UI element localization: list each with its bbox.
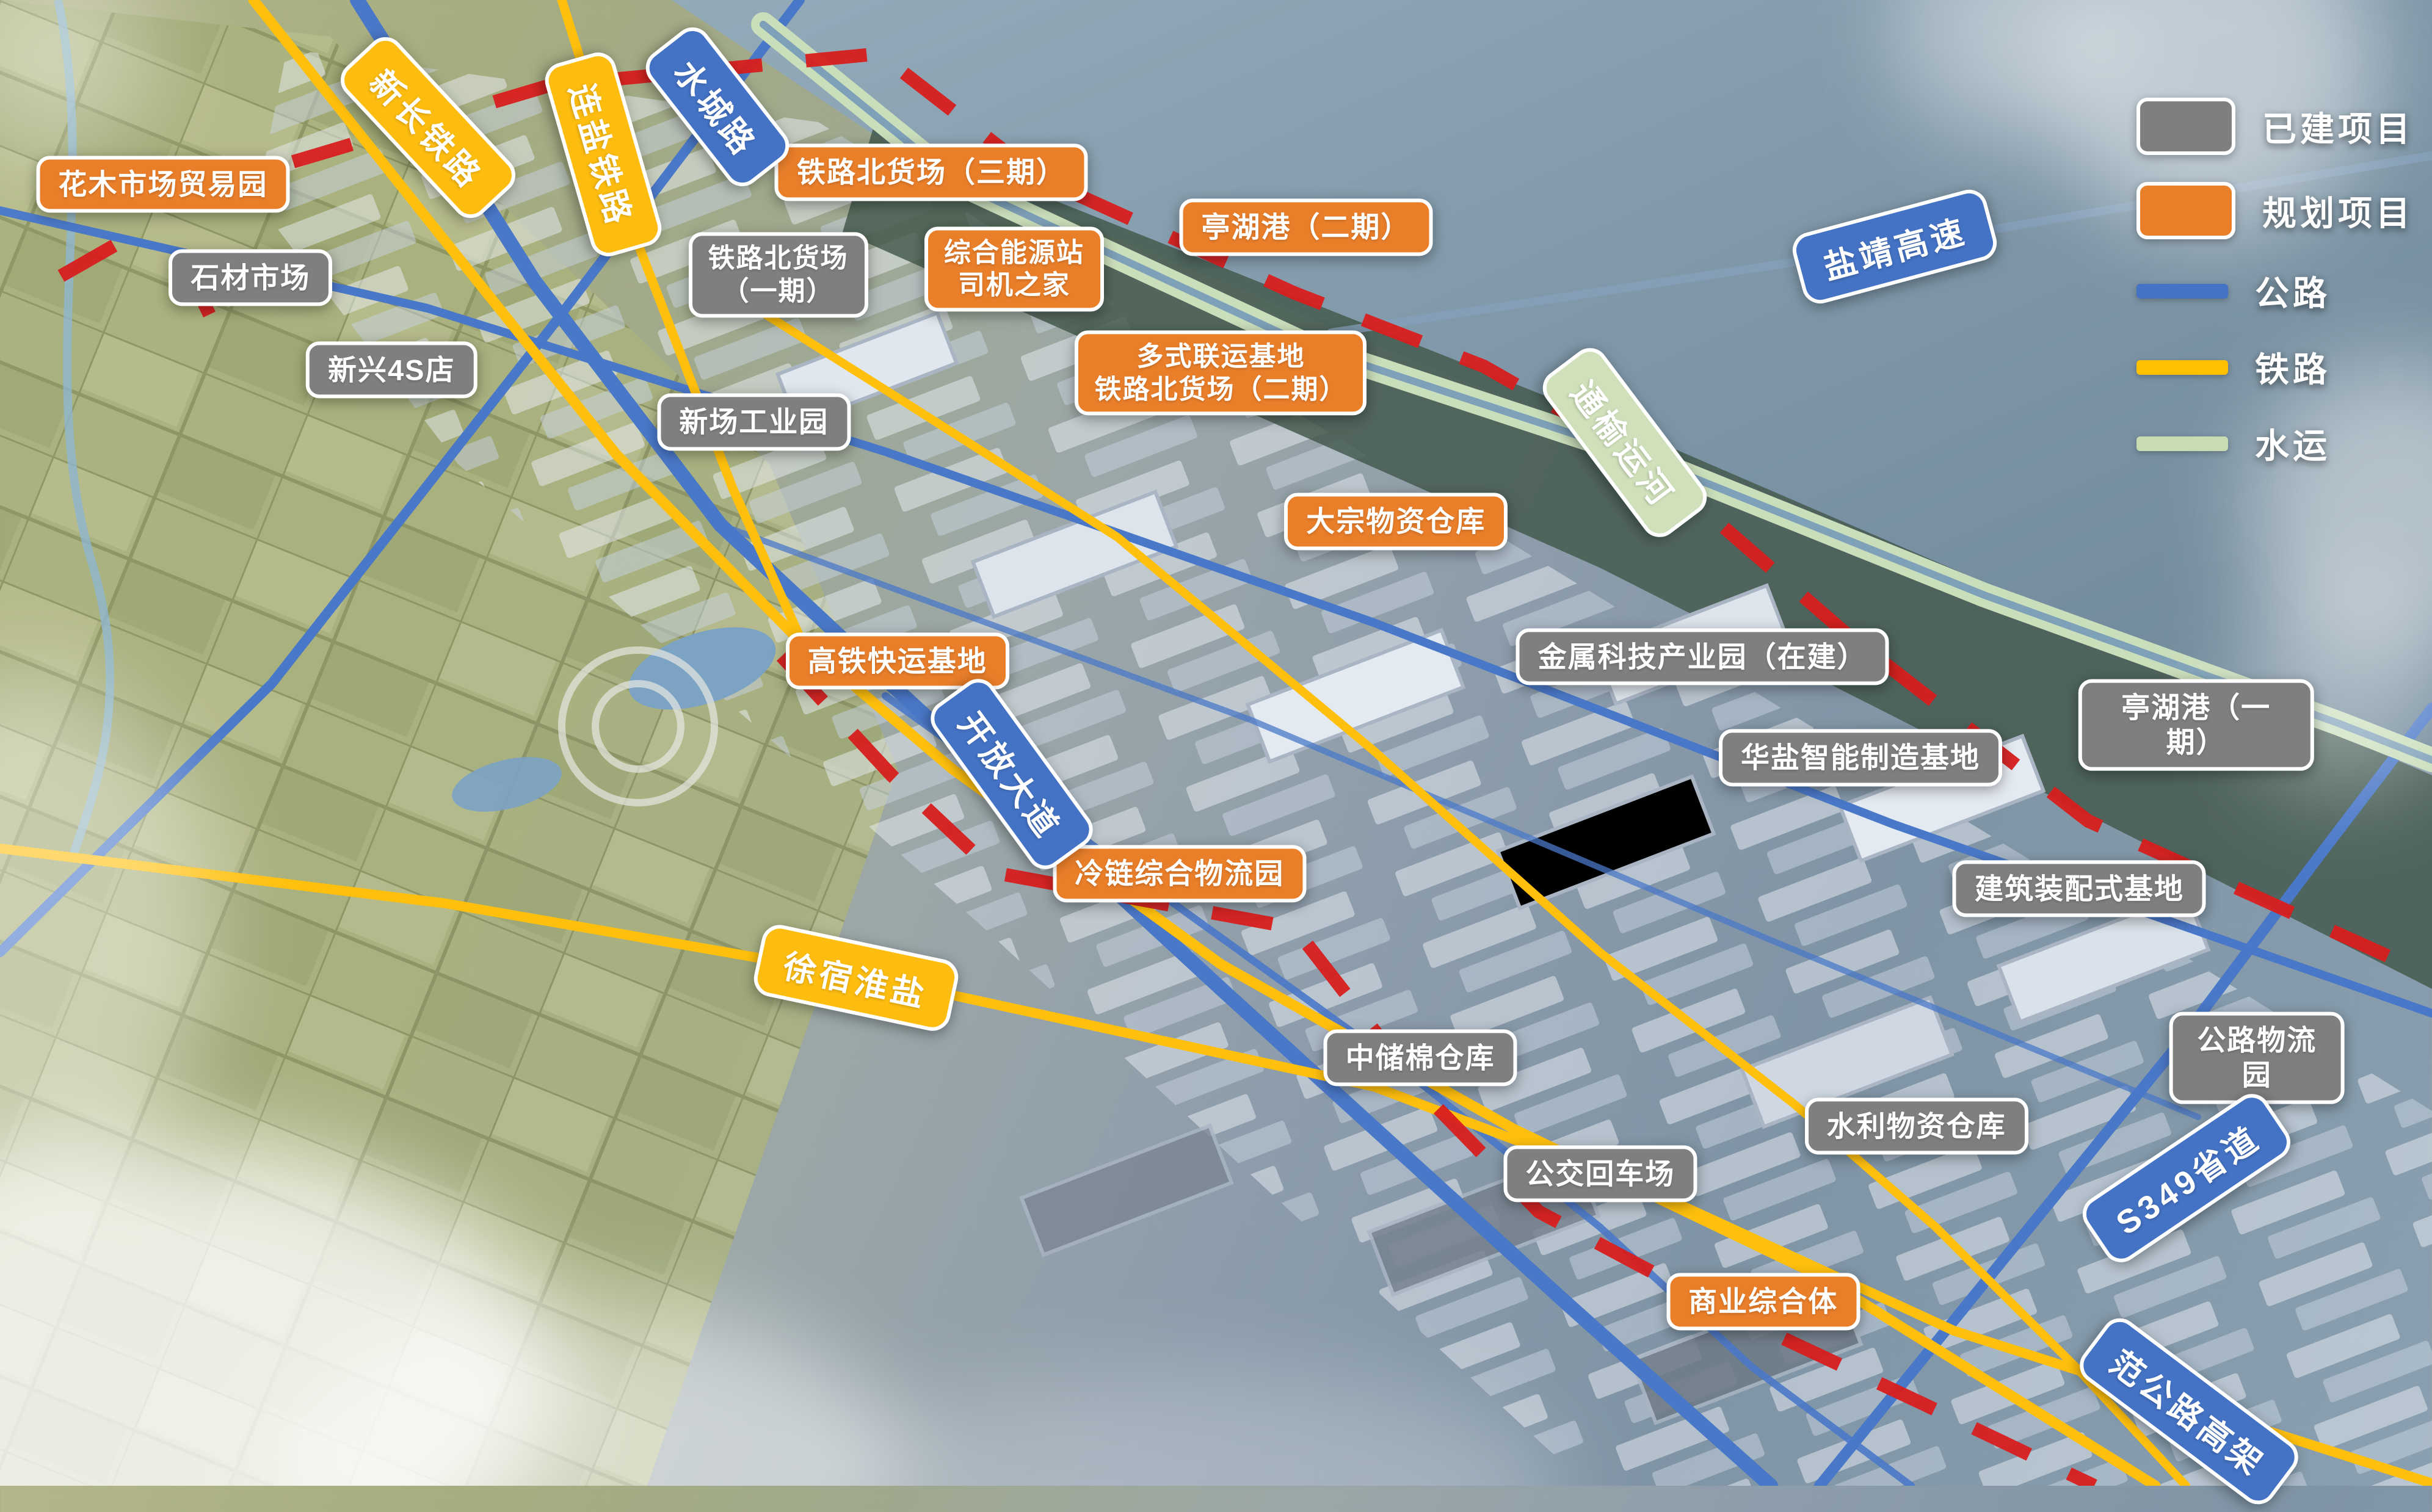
legend-item: 公路 — [2136, 266, 2414, 316]
road-route-label: 开放大道 — [923, 671, 1100, 876]
legend-item-label: 已建项目 — [2262, 102, 2414, 151]
legend-line-swatch — [2136, 436, 2228, 451]
legend-line-swatch — [2136, 360, 2228, 375]
road-route-label: 水城路 — [639, 20, 797, 194]
legend-item: 铁路 — [2136, 342, 2414, 392]
legend-box-swatch — [2136, 182, 2235, 239]
legend-line-swatch — [2136, 284, 2228, 298]
rail-route-label: 连盐铁路 — [540, 48, 666, 261]
road-route-label: S349省道 — [2075, 1087, 2297, 1270]
rail-route-label: 徐宿淮盐 — [750, 921, 962, 1034]
rail-route-label: 新长铁路 — [333, 30, 523, 226]
legend-item: 规划项目 — [2136, 182, 2414, 239]
road-route-label: 范公路高架 — [2072, 1311, 2305, 1512]
legend-item-label: 公路 — [2255, 266, 2331, 316]
legend-item-label: 规划项目 — [2262, 186, 2414, 236]
legend: 已建项目规划项目公路铁路水运 — [2136, 98, 2414, 468]
legend-box-swatch — [2136, 98, 2235, 155]
legend-item: 已建项目 — [2136, 98, 2414, 155]
legend-item: 水运 — [2136, 419, 2414, 468]
legend-item-label: 水运 — [2255, 419, 2331, 468]
waterway-route-label: 通榆运河 — [1535, 341, 1713, 545]
route-labels-layer: 新长铁路连盐铁路水城路盐靖高速通榆运河开放大道徐宿淮盐S349省道范公路高架 — [0, 0, 2432, 1486]
aerial-planning-map: 花木市场贸易园石材市场新兴4S店铁路北货场（三期）铁路北货场 （一期）综合能源站… — [0, 0, 2432, 1486]
legend-item-label: 铁路 — [2255, 342, 2331, 392]
road-route-label: 盐靖高速 — [1788, 186, 2001, 308]
